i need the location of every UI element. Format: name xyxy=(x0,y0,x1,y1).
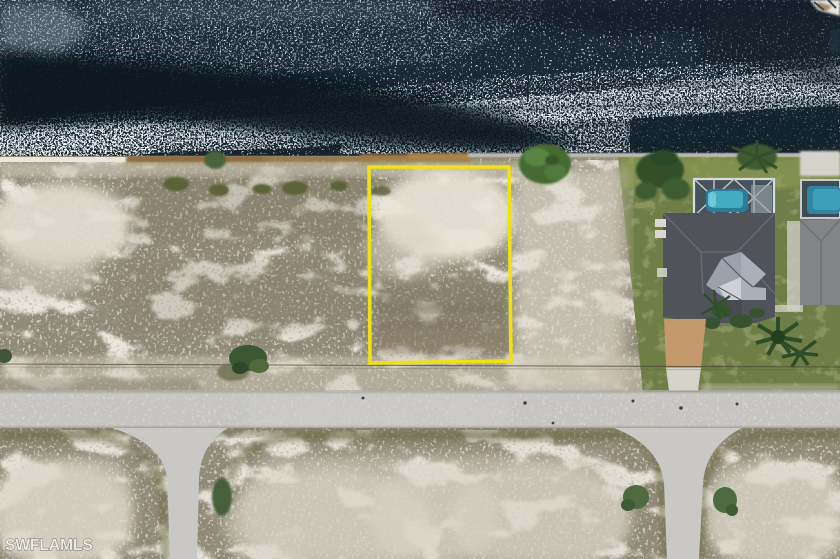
svg-text:SWFLAMLS: SWFLAMLS xyxy=(5,537,93,554)
